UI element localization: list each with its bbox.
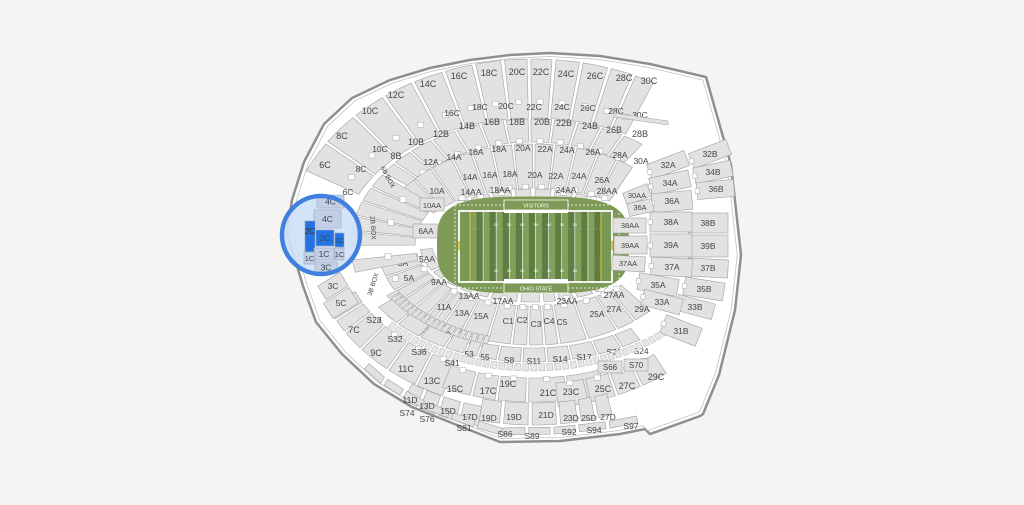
svg-text:S89: S89	[524, 431, 539, 441]
svg-text:17C: 17C	[480, 386, 497, 396]
svg-text:36B: 36B	[708, 184, 723, 194]
svg-text:16B: 16B	[484, 117, 500, 127]
svg-text:13AA: 13AA	[459, 291, 480, 301]
svg-text:19C: 19C	[500, 379, 517, 389]
svg-text:20B: 20B	[534, 117, 550, 127]
svg-text:20C: 20C	[509, 67, 526, 77]
svg-text:22C: 22C	[533, 67, 550, 77]
svg-text:S66: S66	[603, 363, 618, 372]
svg-text:39B: 39B	[700, 241, 715, 251]
svg-text:17D: 17D	[462, 412, 478, 422]
svg-text:S81: S81	[456, 423, 471, 433]
svg-text:30C: 30C	[641, 76, 658, 86]
svg-text:15D: 15D	[440, 406, 456, 416]
svg-text:11D: 11D	[403, 395, 418, 405]
svg-text:13A: 13A	[454, 308, 469, 318]
svg-text:40: 40	[520, 222, 525, 227]
svg-text:19D: 19D	[481, 413, 497, 423]
svg-text:40: 40	[520, 268, 525, 273]
svg-text:2B BOX: 2B BOX	[368, 216, 376, 240]
svg-text:2C: 2C	[335, 236, 345, 245]
svg-text:3C: 3C	[328, 281, 339, 291]
svg-text:20A: 20A	[527, 170, 542, 180]
svg-text:20C: 20C	[498, 101, 514, 111]
svg-text:VISITORS: VISITORS	[523, 204, 549, 210]
svg-text:6AA: 6AA	[418, 227, 434, 236]
svg-text:27AA: 27AA	[604, 290, 625, 300]
svg-text:17AA: 17AA	[493, 296, 514, 306]
svg-text:11C: 11C	[398, 364, 414, 374]
svg-text:24C: 24C	[554, 102, 570, 112]
svg-text:10C: 10C	[362, 106, 379, 116]
svg-text:33A: 33A	[654, 297, 669, 307]
svg-text:12C: 12C	[388, 90, 405, 100]
svg-text:36A: 36A	[664, 196, 679, 206]
svg-text:40: 40	[547, 268, 552, 273]
svg-text:14A: 14A	[446, 152, 461, 162]
svg-text:C3: C3	[531, 319, 542, 329]
svg-text:20: 20	[573, 222, 578, 227]
svg-text:16C: 16C	[444, 108, 460, 118]
svg-text:38AA: 38AA	[621, 221, 639, 230]
svg-text:32A: 32A	[660, 160, 675, 170]
svg-text:S41: S41	[444, 358, 459, 368]
svg-text:12A: 12A	[423, 157, 438, 167]
svg-text:S92: S92	[561, 427, 576, 437]
svg-text:36A: 36A	[633, 203, 646, 212]
svg-text:27C: 27C	[619, 381, 636, 391]
svg-text:50: 50	[534, 222, 539, 227]
svg-text:5C: 5C	[336, 298, 347, 308]
svg-text:40: 40	[547, 222, 552, 227]
svg-text:8B: 8B	[390, 151, 401, 161]
svg-text:10A: 10A	[429, 186, 444, 196]
svg-text:20A: 20A	[515, 143, 530, 153]
svg-text:27A: 27A	[606, 304, 621, 314]
svg-text:OHIO STATE: OHIO STATE	[520, 287, 553, 293]
svg-text:23C: 23C	[563, 387, 580, 397]
svg-text:28B: 28B	[632, 129, 648, 139]
svg-text:11A: 11A	[437, 302, 452, 312]
svg-text:26C: 26C	[587, 71, 604, 81]
svg-text:S86: S86	[497, 429, 512, 439]
svg-text:C4: C4	[544, 316, 555, 326]
svg-text:38B: 38B	[700, 218, 715, 228]
svg-text:31B: 31B	[673, 326, 688, 336]
svg-text:16A: 16A	[468, 147, 483, 157]
svg-text:24A: 24A	[571, 171, 586, 181]
svg-text:32B: 32B	[702, 149, 717, 159]
svg-text:23D: 23D	[563, 413, 579, 423]
svg-text:19D: 19D	[506, 412, 522, 422]
svg-text:C5: C5	[557, 317, 568, 327]
svg-text:13C: 13C	[424, 376, 441, 386]
svg-text:S32: S32	[387, 334, 402, 344]
svg-text:24A: 24A	[559, 145, 574, 155]
svg-text:21D: 21D	[538, 410, 554, 420]
svg-text:1C: 1C	[305, 254, 315, 263]
svg-text:18AA: 18AA	[490, 185, 511, 195]
svg-text:14A: 14A	[462, 172, 477, 182]
svg-text:C1: C1	[503, 316, 514, 326]
svg-text:18A: 18A	[502, 169, 517, 179]
svg-text:30: 30	[560, 268, 565, 273]
svg-text:33B: 33B	[687, 302, 702, 312]
svg-text:30: 30	[560, 222, 565, 227]
svg-text:28AA: 28AA	[597, 186, 618, 196]
svg-text:50: 50	[534, 268, 539, 273]
svg-text:22B: 22B	[556, 118, 572, 128]
svg-text:20: 20	[573, 268, 578, 273]
svg-text:16C: 16C	[451, 71, 468, 81]
svg-text:18B: 18B	[509, 117, 525, 127]
svg-text:18C: 18C	[481, 68, 498, 78]
svg-text:6C: 6C	[319, 160, 331, 170]
svg-text:23AA: 23AA	[557, 296, 578, 306]
svg-text:30AA: 30AA	[628, 191, 646, 200]
svg-text:25D: 25D	[581, 413, 597, 423]
svg-text:39A: 39A	[663, 240, 678, 250]
svg-text:25C: 25C	[595, 384, 612, 394]
svg-text:15C: 15C	[447, 384, 464, 394]
svg-text:21C: 21C	[540, 388, 557, 398]
svg-text:1C: 1C	[335, 250, 345, 259]
svg-text:S94: S94	[586, 425, 601, 435]
svg-text:14AA: 14AA	[461, 187, 482, 197]
svg-text:S74: S74	[399, 408, 414, 418]
svg-text:12B: 12B	[433, 129, 449, 139]
svg-text:28C: 28C	[616, 73, 633, 83]
svg-text:5A: 5A	[404, 273, 415, 283]
svg-text:26B: 26B	[606, 125, 622, 135]
svg-text:7C: 7C	[348, 325, 360, 335]
svg-text:24B: 24B	[582, 121, 598, 131]
svg-text:26A: 26A	[594, 175, 609, 185]
svg-text:1C: 1C	[319, 249, 330, 259]
svg-text:S70: S70	[629, 361, 644, 370]
svg-text:26C: 26C	[580, 103, 596, 113]
svg-text:10AA: 10AA	[423, 201, 441, 210]
svg-text:29C: 29C	[648, 372, 665, 382]
svg-text:37AA: 37AA	[619, 259, 637, 268]
svg-text:18A: 18A	[491, 144, 506, 154]
svg-text:30: 30	[507, 222, 512, 227]
svg-text:22C: 22C	[526, 102, 542, 112]
svg-text:9C: 9C	[370, 348, 382, 358]
svg-text:34B: 34B	[705, 167, 720, 177]
svg-text:S76: S76	[419, 414, 434, 424]
svg-text:2C: 2C	[305, 226, 316, 236]
svg-text:5AA: 5AA	[419, 254, 435, 264]
svg-text:22A: 22A	[537, 144, 552, 154]
svg-text:8C: 8C	[356, 164, 367, 174]
svg-text:22A: 22A	[548, 171, 563, 181]
svg-text:20: 20	[494, 222, 499, 227]
svg-text:24AA: 24AA	[556, 185, 577, 195]
svg-text:26A: 26A	[585, 147, 600, 157]
svg-text:24C: 24C	[558, 69, 575, 79]
svg-text:34A: 34A	[662, 178, 677, 188]
svg-text:S36: S36	[411, 347, 426, 357]
svg-text:38A: 38A	[663, 217, 678, 227]
svg-text:15A: 15A	[473, 311, 488, 321]
svg-text:18C: 18C	[472, 102, 488, 112]
svg-text:S28: S28	[366, 315, 381, 325]
svg-text:28A: 28A	[612, 150, 627, 160]
svg-text:10C: 10C	[372, 144, 388, 154]
svg-text:4C: 4C	[322, 214, 333, 224]
svg-text:39AA: 39AA	[621, 241, 639, 250]
svg-text:16A: 16A	[482, 170, 497, 180]
svg-text:35A: 35A	[650, 280, 665, 290]
svg-text:37A: 37A	[664, 262, 679, 272]
svg-text:13D: 13D	[419, 401, 435, 411]
svg-text:C2: C2	[517, 315, 528, 325]
svg-text:14C: 14C	[420, 79, 437, 89]
svg-text:30: 30	[507, 268, 512, 273]
svg-text:14B: 14B	[459, 121, 475, 131]
svg-text:S97: S97	[623, 421, 638, 431]
svg-text:25A: 25A	[589, 309, 604, 319]
svg-text:2C: 2C	[320, 233, 331, 243]
svg-text:8C: 8C	[336, 131, 348, 141]
svg-text:35B: 35B	[696, 284, 711, 294]
svg-text:37B: 37B	[700, 263, 715, 273]
svg-text:20: 20	[494, 268, 499, 273]
svg-text:9AA: 9AA	[431, 277, 447, 287]
svg-text:10B: 10B	[408, 137, 424, 147]
